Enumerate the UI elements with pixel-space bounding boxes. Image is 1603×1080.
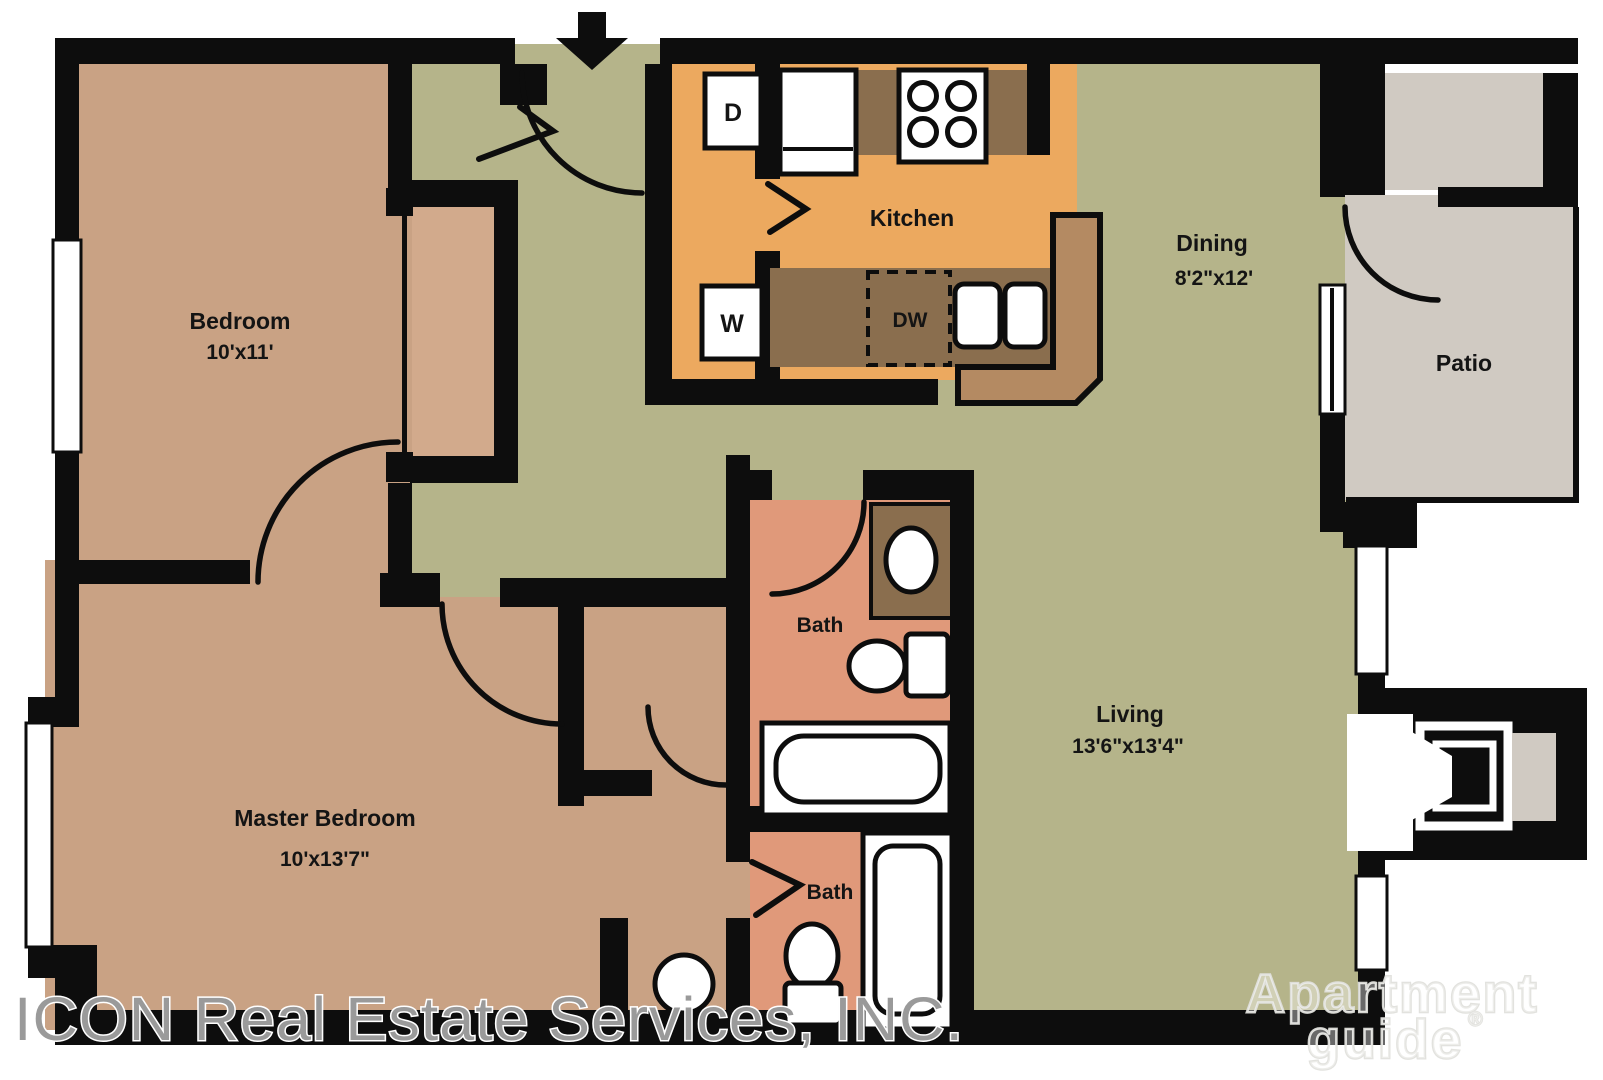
wall-segment <box>1438 187 1543 207</box>
patio-label: Patio <box>1436 350 1492 376</box>
wall-segment <box>410 456 518 483</box>
wall-segment <box>55 560 250 584</box>
stove-burner <box>948 119 975 146</box>
wall-segment <box>645 64 672 405</box>
wall-segment <box>494 180 518 483</box>
bedroom-window <box>53 240 81 452</box>
company-watermark: ICON Real Estate Services, INC. <box>14 985 964 1053</box>
bath-upper-vanity-sink <box>886 528 936 592</box>
stove <box>899 70 986 162</box>
refrigerator <box>780 70 856 174</box>
wall-segment <box>1320 412 1345 532</box>
floor-plan-drawing: Bedroom 10'x11' Master Bedroom 10'x13'7"… <box>0 0 1603 1080</box>
fireplace-firebox <box>1347 714 1413 851</box>
wall-segment <box>388 483 412 584</box>
bedroom-closet-door-track <box>402 214 407 456</box>
master-bedroom-window <box>26 723 52 947</box>
bedroom-label: Bedroom <box>190 308 291 334</box>
washer-label: W <box>720 310 744 338</box>
bath-upper-toilet-bowl <box>849 641 905 691</box>
bath-upper-toilet-tank <box>906 634 948 696</box>
wall-segment <box>1543 73 1578 207</box>
wall-segment <box>55 38 515 64</box>
wall-segment <box>386 188 413 216</box>
wall-segment <box>645 379 938 405</box>
wall-segment <box>55 38 79 242</box>
kitchen-label: Kitchen <box>870 205 954 231</box>
wall-segment <box>500 578 750 607</box>
living-label: Living <box>1096 701 1164 727</box>
dryer-label: D <box>724 99 742 127</box>
dishwasher-label: DW <box>893 309 928 332</box>
fireplace-hearth <box>1512 733 1556 821</box>
wall-segment <box>386 452 413 482</box>
stove-burner <box>910 119 937 146</box>
dining-label: Dining <box>1176 230 1248 256</box>
stove-burner <box>948 83 975 110</box>
living-window-upper <box>1356 546 1387 674</box>
wall-segment <box>726 578 750 808</box>
wall-segment <box>558 770 652 796</box>
master-bedroom-label: Master Bedroom <box>234 805 415 831</box>
kitchen-sink-right-bowl <box>1005 284 1045 347</box>
wall-segment <box>1320 64 1385 195</box>
master-bedroom-floor <box>45 560 760 1030</box>
dining-window-mullion <box>1330 288 1334 411</box>
stove-burner <box>910 83 937 110</box>
living-window-lower <box>1356 876 1387 970</box>
wall-segment <box>660 38 1578 64</box>
wall-segment <box>380 573 440 607</box>
dining-dims: 8'2"x12' <box>1175 267 1253 290</box>
bedroom-dims: 10'x11' <box>206 341 273 364</box>
kitchen-sink-left-bowl <box>955 284 1000 347</box>
living-dims: 13'6"x13'4" <box>1072 735 1184 758</box>
wall-segment <box>726 832 750 862</box>
bath-upper-label: Bath <box>797 614 844 637</box>
floor-plan-page: Bedroom 10'x11' Master Bedroom 10'x13'7"… <box>0 0 1603 1080</box>
wall-segment <box>1027 64 1050 155</box>
bathtub <box>776 736 940 802</box>
bath-lower-toilet-bowl <box>786 924 838 988</box>
patio-floor <box>1345 195 1575 500</box>
wall-segment <box>388 64 412 207</box>
patio-upper-floor <box>1385 73 1543 190</box>
master-bedroom-dims: 10'x13'7" <box>280 848 370 871</box>
wall-segment <box>28 945 97 978</box>
registered-mark: ® <box>1468 1009 1483 1031</box>
bath-lower-label: Bath <box>807 881 854 904</box>
entry-arrow-shaft <box>578 12 606 39</box>
wall-segment <box>726 455 750 580</box>
brand-watermark-line2: guide <box>1307 1008 1464 1070</box>
